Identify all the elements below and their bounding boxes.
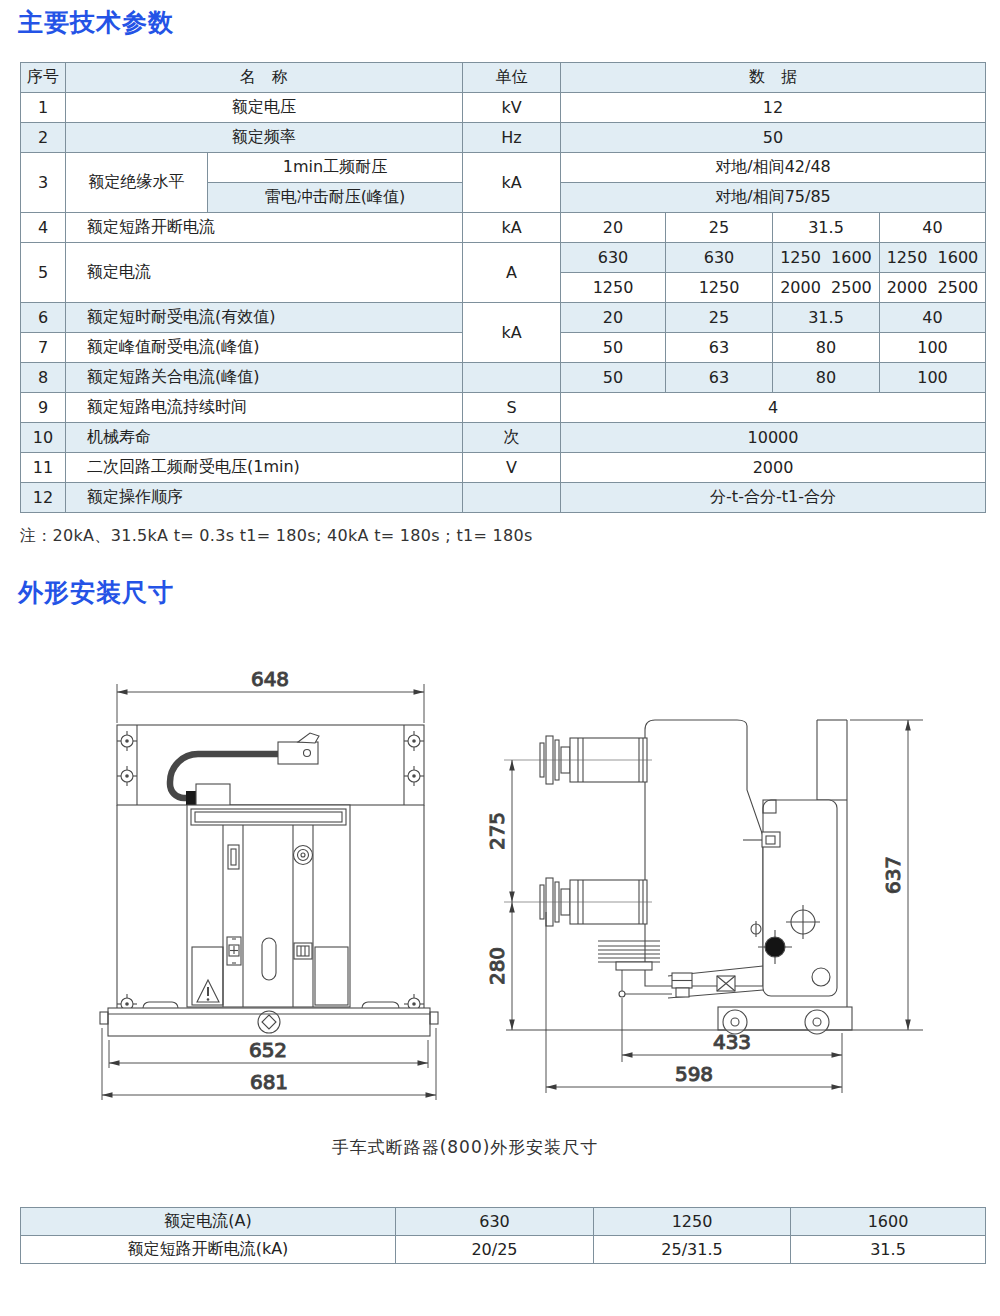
header-data: 数 据 — [561, 63, 986, 93]
table-header-row: 序号 名 称 单位 数 据 — [21, 63, 986, 93]
table-row: 5 额定电流 A 630 630 1250 1600 1250 1600 — [21, 243, 986, 273]
table-footnote: 注：20kA、31.5kA t= 0.3s t1= 180s; 40kA t= … — [20, 526, 533, 547]
section-title-dimensions: 外形安装尺寸 — [18, 576, 174, 609]
dim-side-inner: 433 — [713, 1030, 751, 1054]
outline-drawings: 648 — [20, 650, 985, 1130]
table-row: 4 额定短路开断电流 kA 20 25 31.5 40 — [21, 213, 986, 243]
table-row: 10 机械寿命 次 10000 — [21, 423, 986, 453]
section-title-main-parameters: 主要技术参数 — [18, 6, 174, 39]
dim-side-upper: 275 — [485, 812, 509, 850]
table-row: 1 额定电压 kV 12 — [21, 93, 986, 123]
dim-front-top: 648 — [251, 667, 289, 691]
front-view-drawing: 648 — [100, 667, 438, 1100]
dim-front-base: 652 — [249, 1038, 287, 1062]
drawing-caption: 手车式断路器(800)外形安装尺寸 — [20, 1136, 910, 1159]
table-row: 额定短路开断电流(kA) 20/25 25/31.5 31.5 — [21, 1236, 986, 1264]
table-row: 3 额定绝缘水平 1min工频耐压 kA 对地/相间42/48 — [21, 153, 986, 183]
table-row: 8 额定短路关合电流(峰值) 50 63 80 100 — [21, 363, 986, 393]
table-row: 9 额定短路电流持续时间 S 4 — [21, 393, 986, 423]
main-parameters-table: 序号 名 称 单位 数 据 1 额定电压 kV 12 2 额定频率 Hz 50 … — [20, 62, 986, 513]
table-row: 6 额定短时耐受电流(有效值) kA 20 25 31.5 40 — [21, 303, 986, 333]
header-name: 名 称 — [66, 63, 463, 93]
table-row: 额定电流(A) 630 1250 1600 — [21, 1208, 986, 1236]
header-no: 序号 — [21, 63, 66, 93]
table-row: 12 额定操作顺序 分-t-合分-t1-合分 — [21, 483, 986, 513]
page: { "page": { "title1": "主要技术参数", "title2"… — [0, 0, 1000, 1316]
dim-side-lower: 280 — [485, 947, 509, 985]
dim-front-overall: 681 — [250, 1070, 288, 1094]
header-unit: 单位 — [463, 63, 561, 93]
side-view-drawing: 275 280 637 433 598 — [485, 720, 923, 1093]
table-row: 11 二次回路工频耐受电压(1min) V 2000 — [21, 453, 986, 483]
dim-side-depth: 598 — [675, 1062, 713, 1086]
rating-table: 额定电流(A) 630 1250 1600 额定短路开断电流(kA) 20/25… — [20, 1207, 986, 1264]
dim-side-height: 637 — [881, 856, 905, 894]
table-row: 2 额定频率 Hz 50 — [21, 123, 986, 153]
